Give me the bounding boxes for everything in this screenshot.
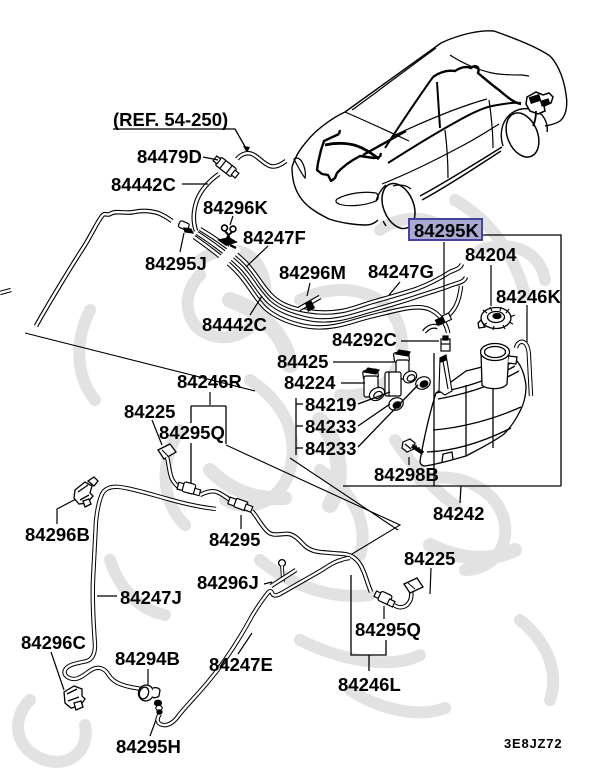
svg-text:84242: 84242 bbox=[433, 503, 484, 524]
svg-text:3E8JZ72: 3E8JZ72 bbox=[504, 736, 562, 751]
svg-text:84442C: 84442C bbox=[202, 314, 267, 335]
svg-text:84247J: 84247J bbox=[120, 587, 182, 608]
svg-text:84479D: 84479D bbox=[137, 146, 202, 167]
svg-text:84296K: 84296K bbox=[203, 197, 268, 218]
svg-text:84295Q: 84295Q bbox=[159, 422, 225, 443]
svg-text:84224: 84224 bbox=[284, 372, 336, 393]
svg-text:84246L: 84246L bbox=[338, 674, 401, 695]
svg-text:84296J: 84296J bbox=[197, 572, 259, 593]
svg-text:84295K: 84295K bbox=[414, 220, 479, 241]
svg-text:84442C: 84442C bbox=[111, 174, 176, 195]
svg-text:84247F: 84247F bbox=[243, 227, 306, 248]
svg-text:84295H: 84295H bbox=[116, 736, 181, 757]
svg-text:84295J: 84295J bbox=[145, 253, 207, 274]
svg-text:84425: 84425 bbox=[277, 351, 328, 372]
svg-text:84247G: 84247G bbox=[368, 261, 434, 282]
svg-text:84247E: 84247E bbox=[209, 654, 273, 675]
svg-text:84225: 84225 bbox=[124, 401, 175, 422]
svg-text:84295: 84295 bbox=[209, 529, 260, 550]
svg-text:(REF. 54-250): (REF. 54-250) bbox=[113, 109, 228, 130]
svg-text:84246R: 84246R bbox=[177, 371, 242, 392]
svg-text:84296M: 84296M bbox=[279, 262, 346, 283]
svg-text:84233: 84233 bbox=[305, 438, 356, 459]
svg-text:84296C: 84296C bbox=[21, 632, 86, 653]
svg-text:84204: 84204 bbox=[465, 244, 517, 265]
svg-text:84225: 84225 bbox=[404, 548, 455, 569]
svg-text:84295Q: 84295Q bbox=[355, 619, 421, 640]
svg-text:84233: 84233 bbox=[305, 416, 356, 437]
svg-text:84298B: 84298B bbox=[374, 464, 439, 485]
svg-text:84296B: 84296B bbox=[25, 524, 90, 545]
svg-text:84219: 84219 bbox=[305, 394, 356, 415]
svg-text:84294B: 84294B bbox=[115, 648, 180, 669]
svg-text:84246K: 84246K bbox=[496, 286, 561, 307]
svg-text:84292C: 84292C bbox=[332, 329, 397, 350]
